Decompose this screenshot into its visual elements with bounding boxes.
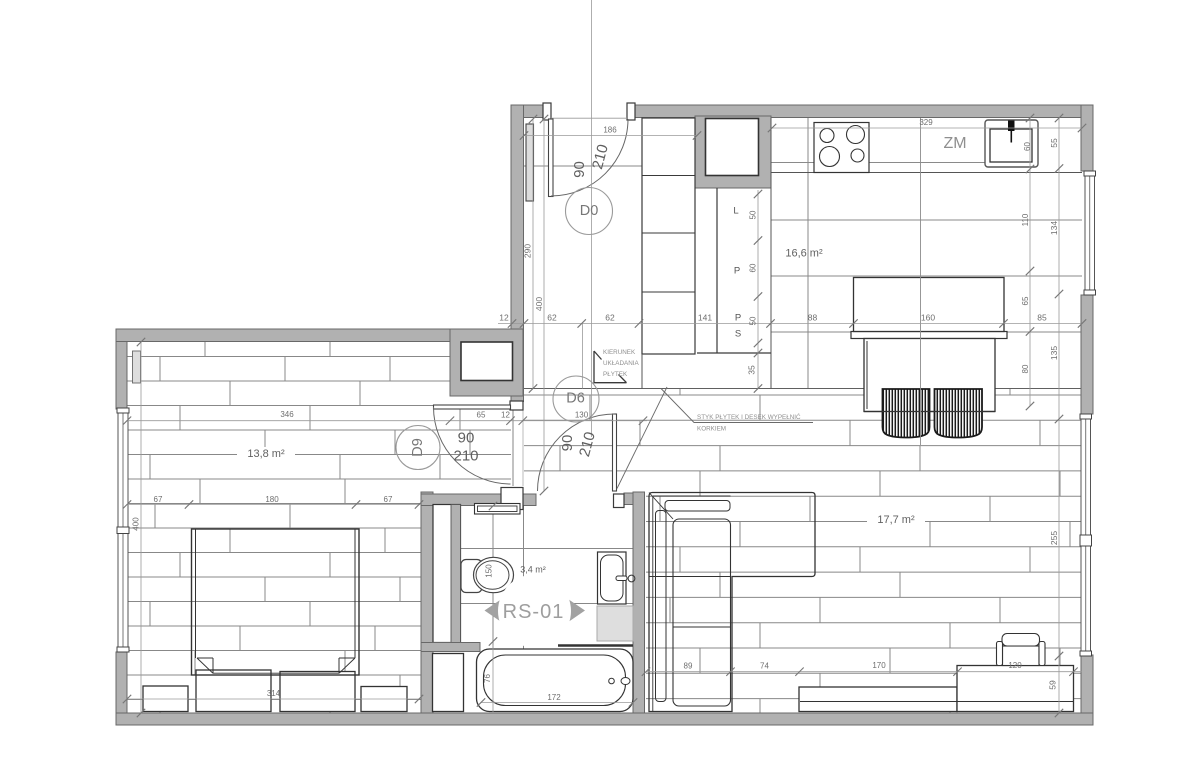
svg-text:12: 12 (499, 312, 509, 322)
svg-text:134: 134 (1049, 221, 1059, 235)
svg-text:329: 329 (919, 118, 933, 127)
svg-text:PŁYTEK: PŁYTEK (603, 371, 628, 378)
svg-text:172: 172 (547, 693, 561, 702)
svg-text:D9: D9 (410, 438, 426, 457)
svg-text:62: 62 (605, 312, 615, 322)
svg-text:141: 141 (698, 312, 712, 322)
svg-text:62: 62 (547, 312, 557, 322)
svg-text:59: 59 (1047, 680, 1057, 690)
svg-text:P: P (734, 266, 740, 277)
svg-text:120: 120 (1008, 661, 1022, 670)
svg-text:85: 85 (1037, 312, 1047, 322)
svg-text:12: 12 (501, 411, 510, 420)
svg-text:L: L (733, 206, 738, 217)
svg-text:135: 135 (1049, 346, 1059, 360)
svg-text:55: 55 (1049, 138, 1059, 148)
svg-text:76: 76 (483, 674, 492, 683)
svg-text:400: 400 (132, 517, 141, 531)
svg-text:67: 67 (154, 495, 163, 504)
svg-text:3,4 m²: 3,4 m² (520, 564, 546, 574)
svg-text:90: 90 (559, 435, 576, 452)
svg-text:D0: D0 (580, 203, 599, 219)
svg-text:110: 110 (1021, 213, 1030, 226)
svg-text:90: 90 (458, 429, 475, 446)
svg-text:P: P (735, 313, 741, 324)
svg-text:150: 150 (485, 564, 494, 578)
svg-text:290: 290 (522, 244, 532, 258)
svg-text:16,6 m²: 16,6 m² (785, 247, 823, 259)
svg-text:60: 60 (1023, 142, 1032, 151)
svg-text:35: 35 (746, 365, 756, 375)
svg-text:74: 74 (760, 662, 769, 671)
svg-text:65: 65 (1021, 296, 1030, 305)
svg-text:80: 80 (1021, 364, 1030, 373)
svg-text:90: 90 (571, 161, 588, 178)
svg-text:130: 130 (575, 411, 589, 420)
svg-text:S: S (735, 329, 741, 340)
svg-text:D6: D6 (566, 390, 585, 406)
svg-text:KIERUNEK: KIERUNEK (603, 349, 636, 356)
svg-text:186: 186 (603, 126, 617, 135)
svg-text:STYK PŁYTEK I DESEK WYPEŁNIĆ: STYK PŁYTEK I DESEK WYPEŁNIĆ (697, 412, 801, 421)
svg-text:89: 89 (684, 662, 693, 671)
svg-text:160: 160 (921, 312, 935, 322)
svg-text:RS-01: RS-01 (503, 601, 565, 623)
svg-text:346: 346 (280, 410, 294, 419)
svg-text:314: 314 (267, 689, 281, 698)
svg-text:UKŁADANIA: UKŁADANIA (603, 360, 639, 367)
svg-text:255: 255 (1049, 531, 1059, 545)
svg-text:13,8 m²: 13,8 m² (247, 448, 285, 460)
svg-text:50: 50 (749, 210, 758, 219)
svg-text:ZM: ZM (943, 135, 966, 152)
svg-text:67: 67 (384, 495, 393, 504)
svg-text:KORKIEM: KORKIEM (697, 426, 726, 433)
svg-text:170: 170 (872, 661, 886, 670)
svg-text:17,7 m²: 17,7 m² (877, 514, 915, 526)
svg-text:210: 210 (453, 447, 478, 464)
svg-text:65: 65 (477, 411, 486, 420)
svg-text:60: 60 (749, 263, 758, 272)
svg-text:400: 400 (534, 297, 544, 311)
svg-text:50: 50 (749, 316, 758, 325)
svg-text:88: 88 (808, 312, 818, 322)
svg-text:180: 180 (265, 495, 279, 504)
